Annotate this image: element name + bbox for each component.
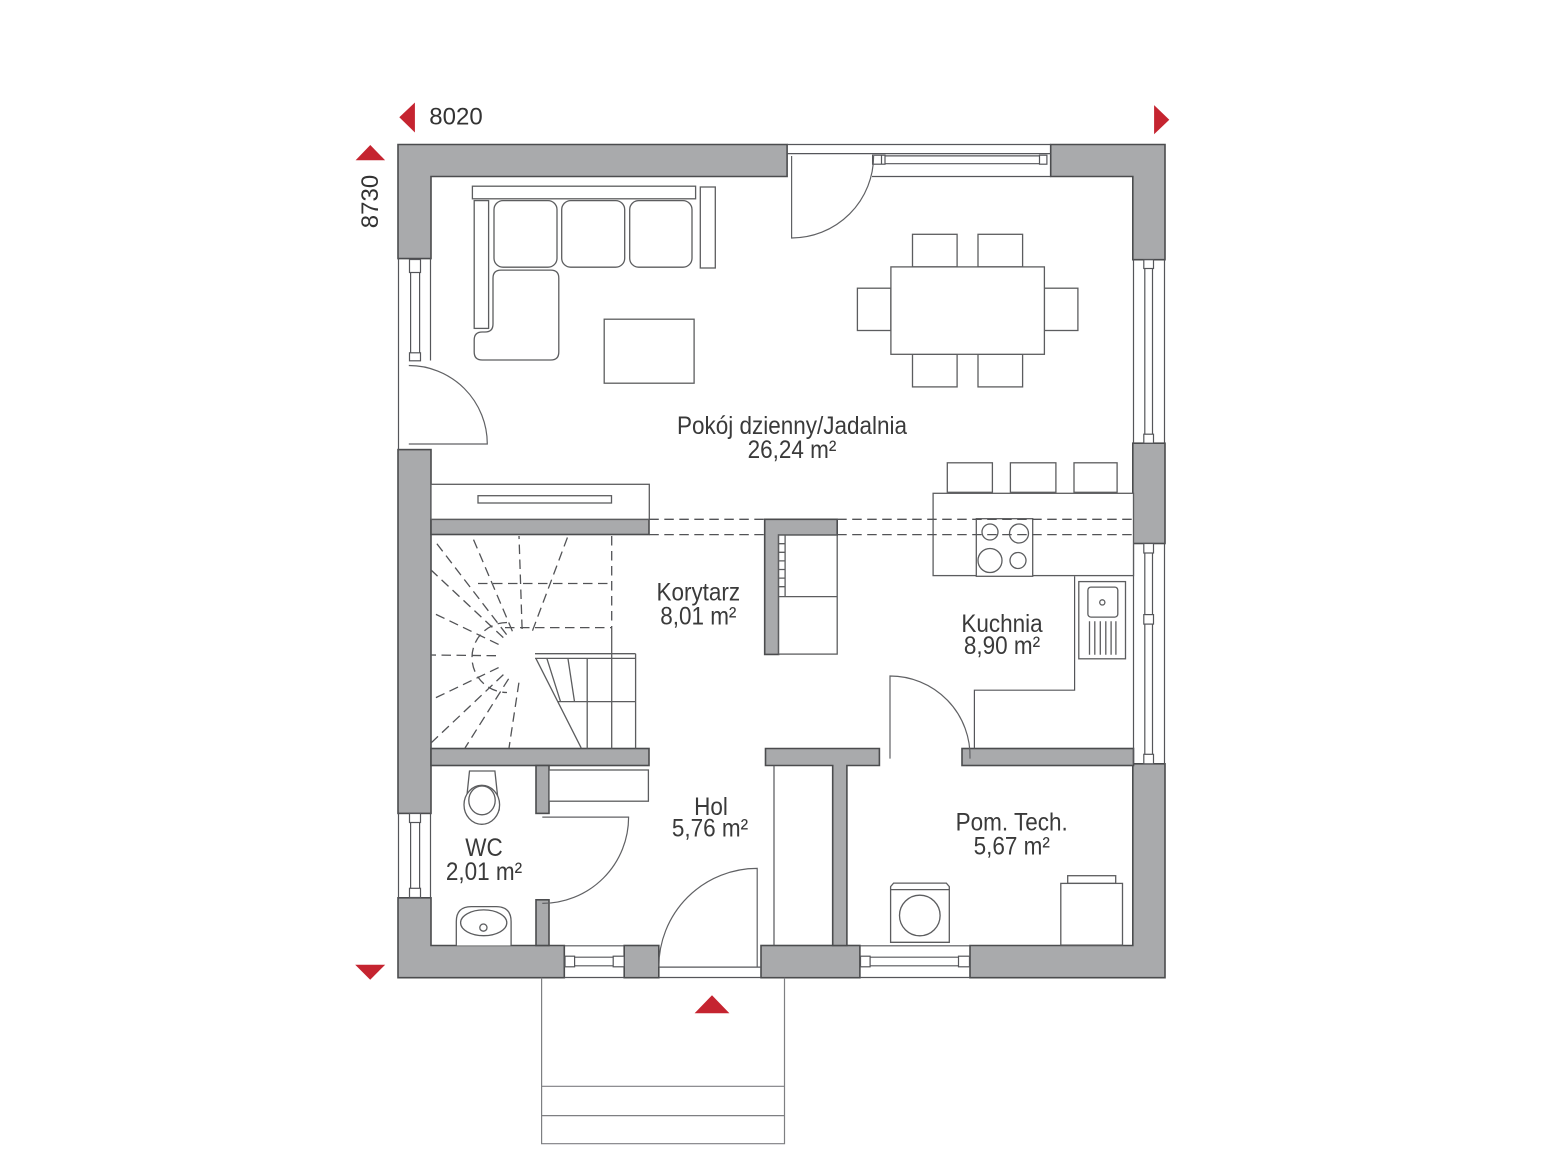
svg-text:5,76 m²: 5,76 m²: [672, 814, 748, 842]
svg-text:2,01 m²: 2,01 m²: [446, 858, 522, 886]
svg-text:5,67 m²: 5,67 m²: [974, 832, 1050, 860]
svg-text:8,90 m²: 8,90 m²: [964, 632, 1040, 660]
svg-text:8,01 m²: 8,01 m²: [660, 602, 736, 630]
svg-text:8730: 8730: [357, 175, 384, 228]
svg-text:26,24 m²: 26,24 m²: [748, 436, 837, 464]
svg-text:8020: 8020: [429, 103, 482, 130]
